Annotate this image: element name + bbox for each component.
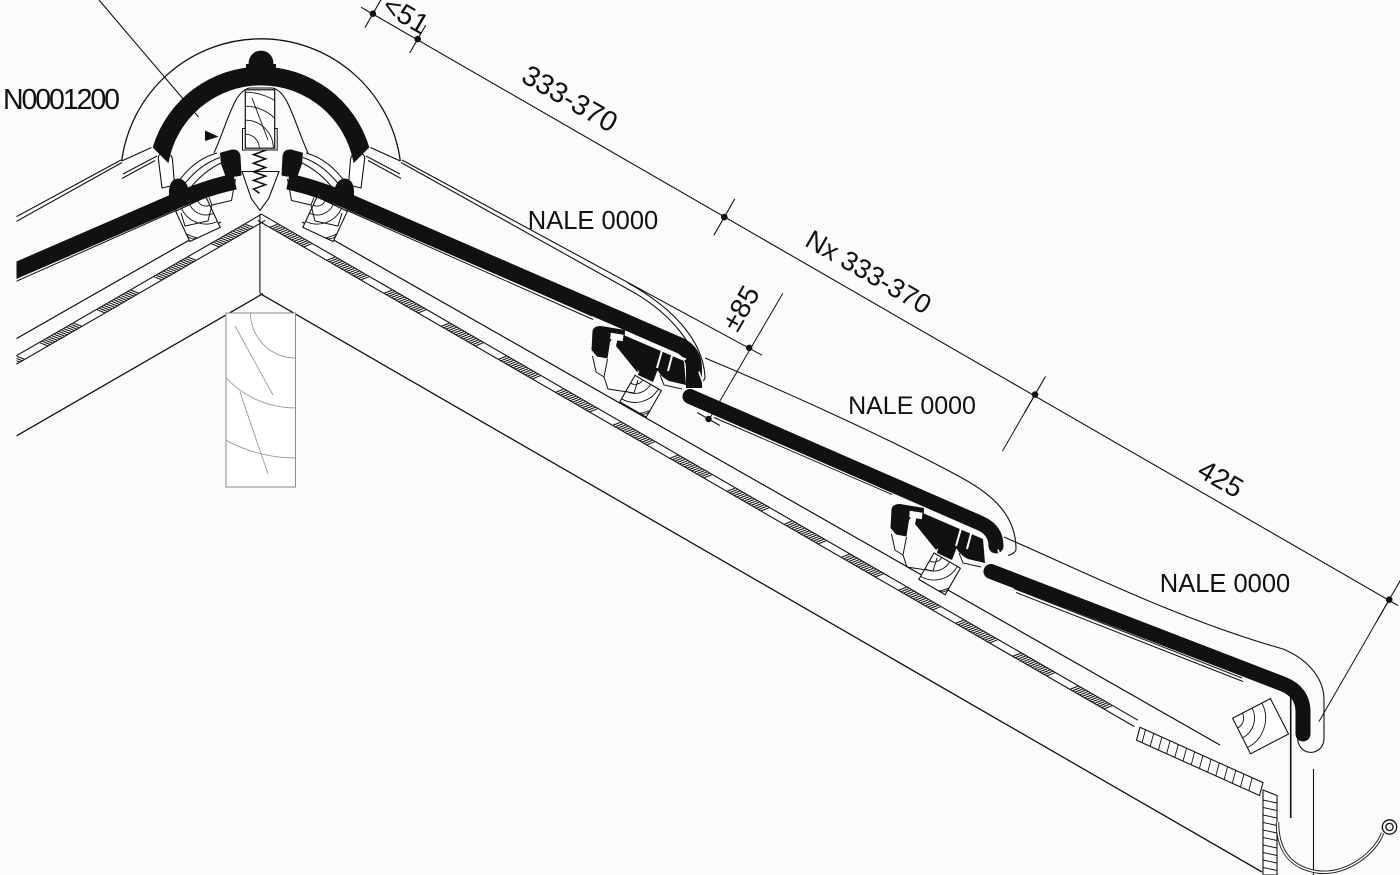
svg-text:N0001200: N0001200 xyxy=(3,84,120,116)
svg-text:NALE 0000: NALE 0000 xyxy=(528,207,658,235)
svg-text:NALE 0000: NALE 0000 xyxy=(848,392,976,420)
svg-text:NALE 0000: NALE 0000 xyxy=(1160,570,1290,598)
